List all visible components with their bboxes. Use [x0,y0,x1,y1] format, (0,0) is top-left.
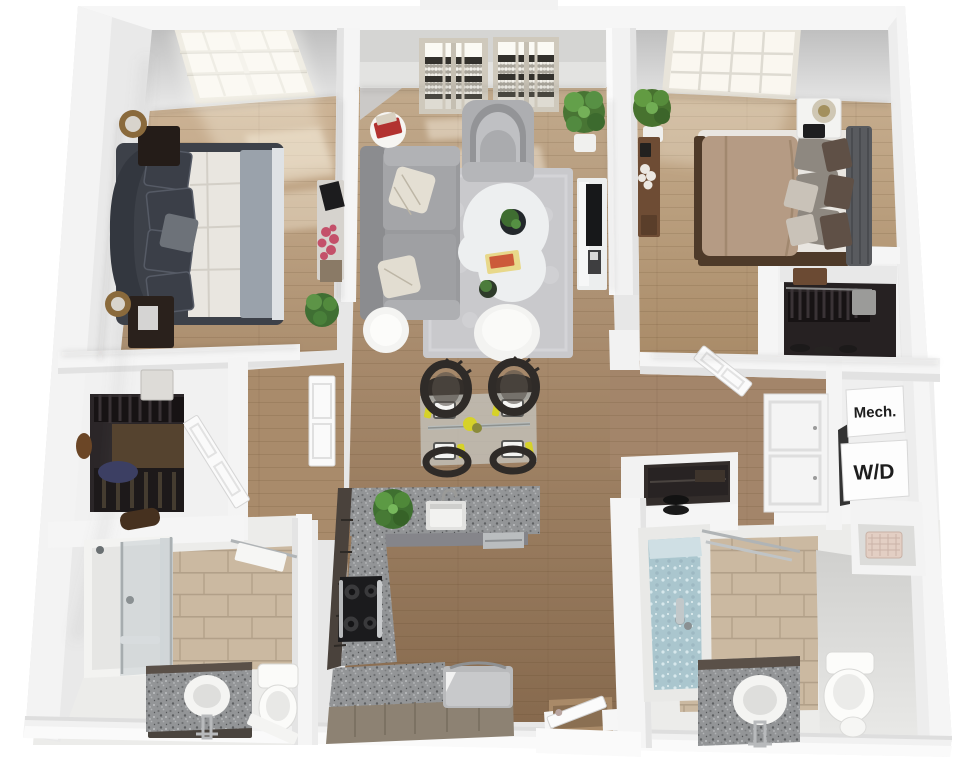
svg-text:W/D: W/D [853,460,895,484]
svg-text:Mech.: Mech. [853,403,896,421]
